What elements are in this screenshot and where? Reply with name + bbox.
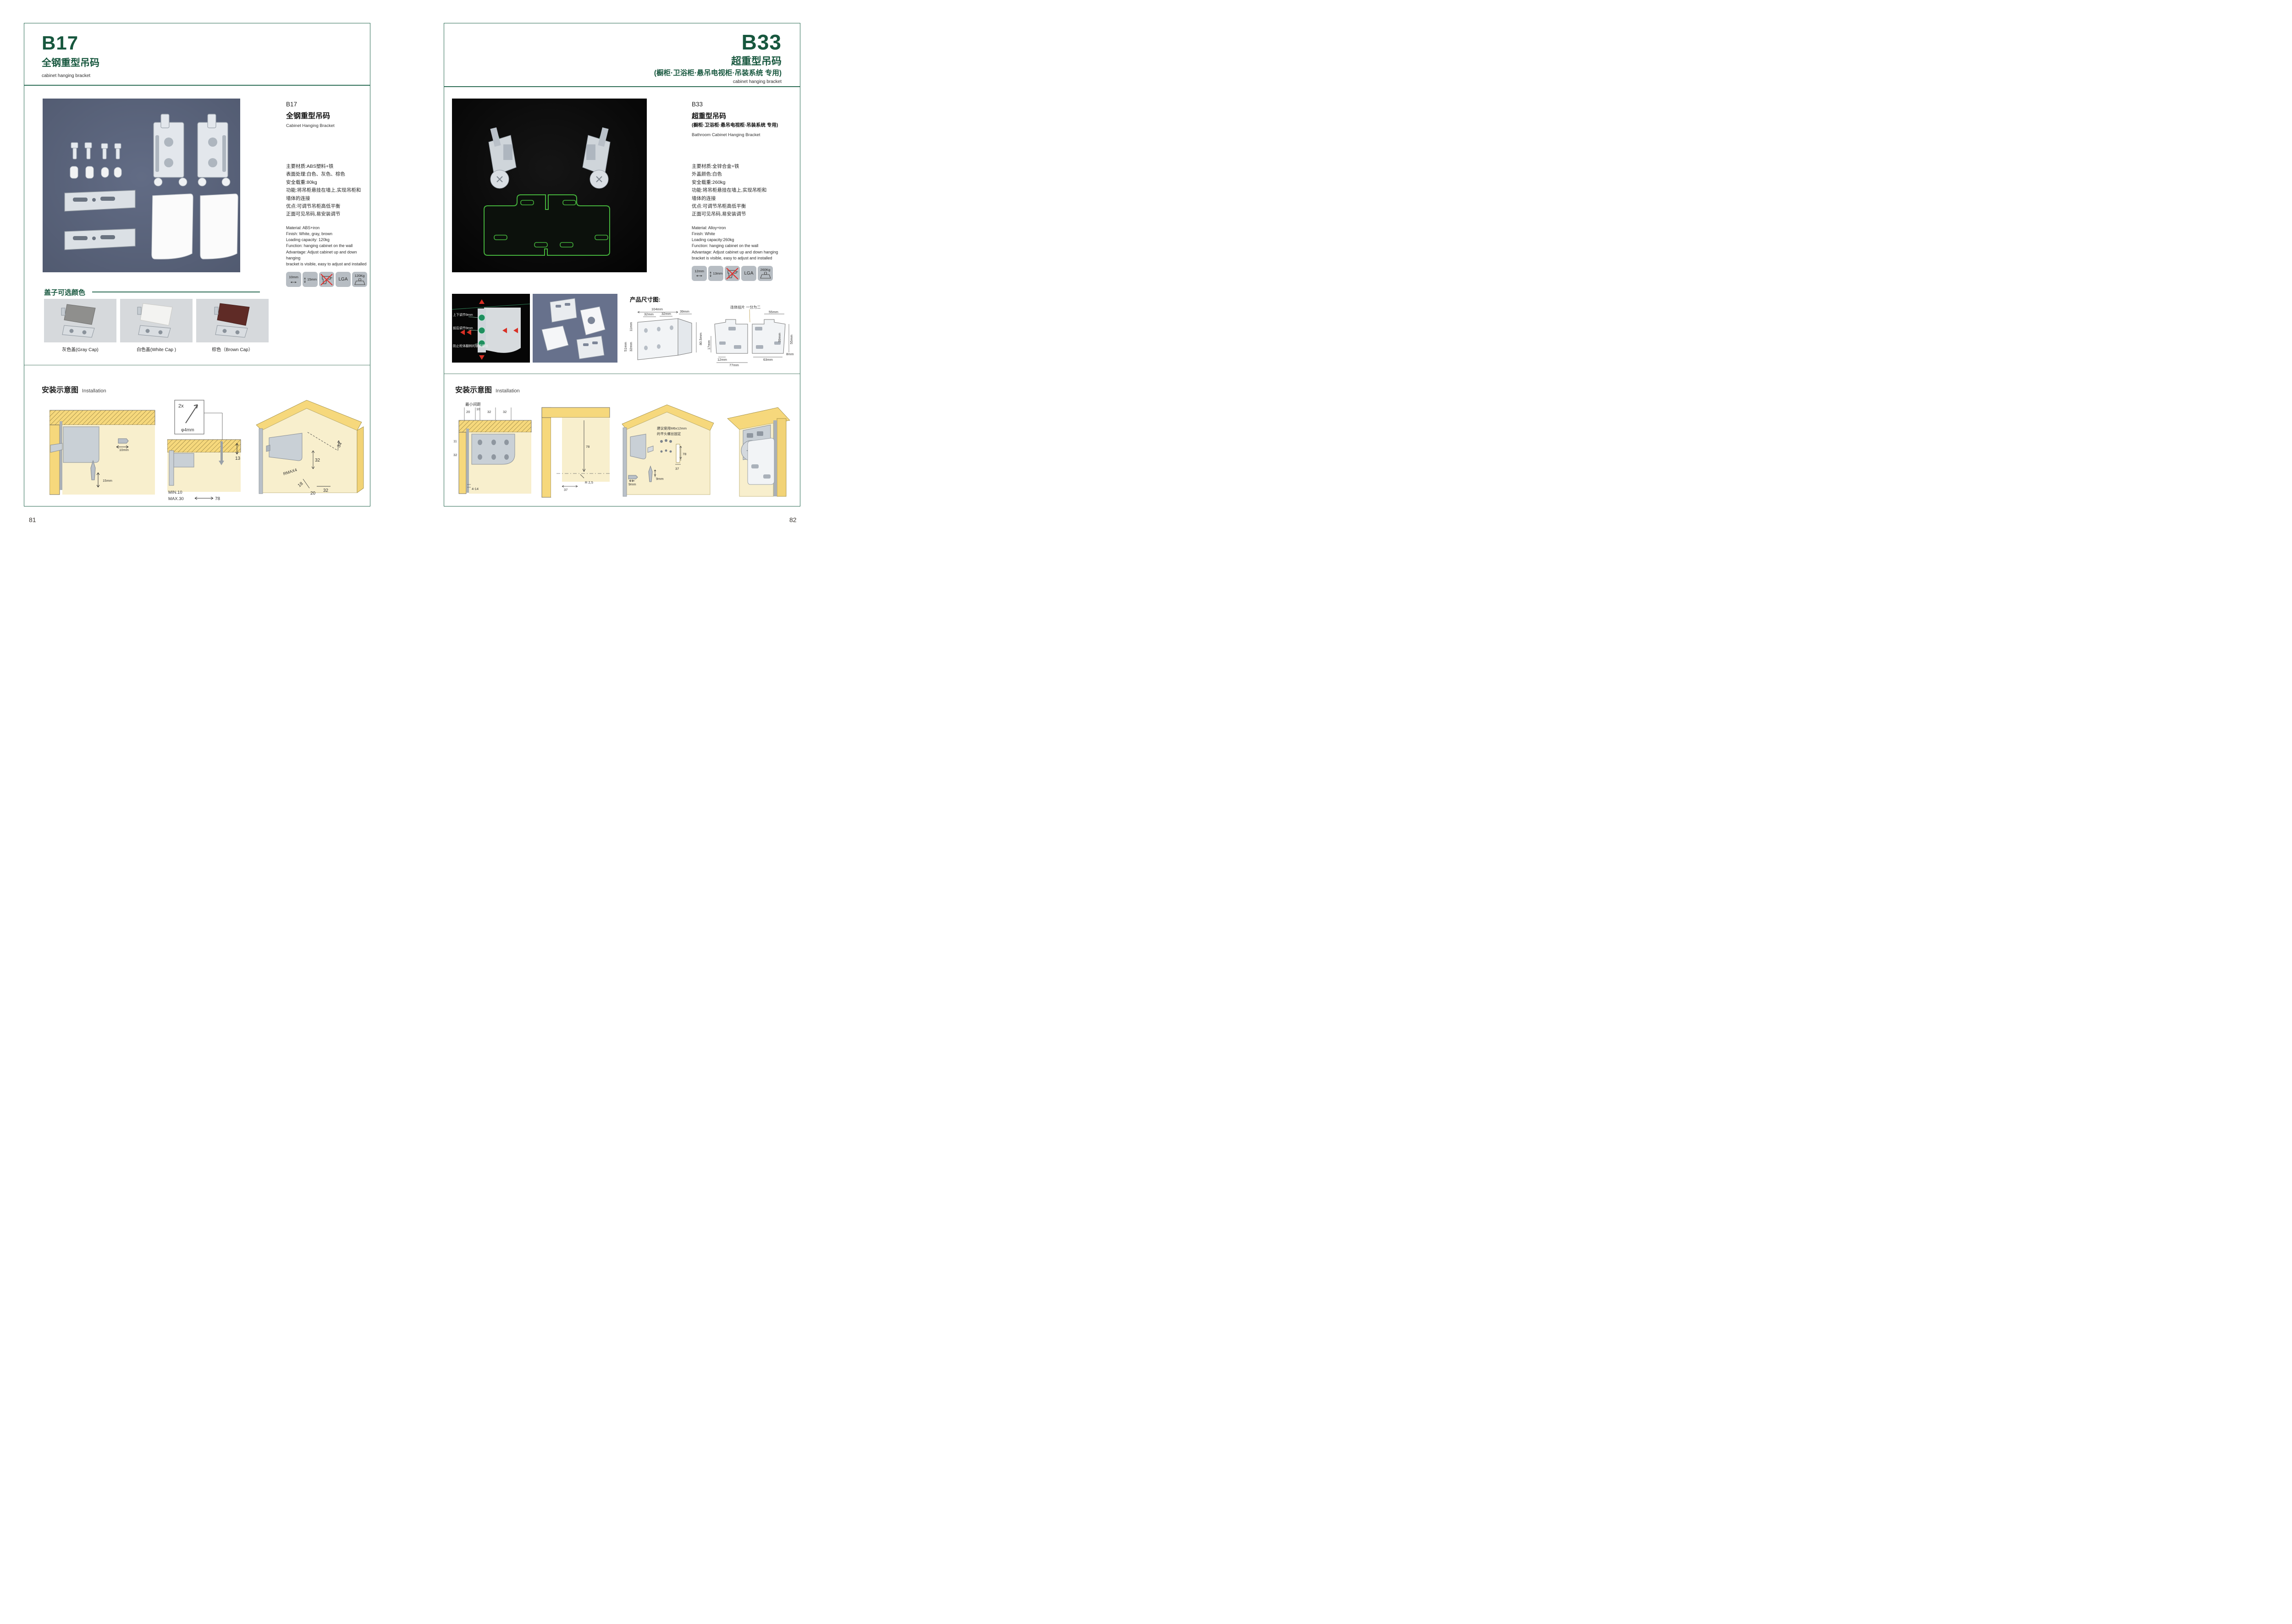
page-title-cn: 全钢重型吊码 xyxy=(42,58,99,68)
installation-title-en: Installation xyxy=(82,388,106,394)
dim-78: 78 xyxy=(586,445,590,449)
spec-name-cn2: (橱柜·卫浴柜·悬吊电视柜·吊装系统 专用) xyxy=(692,121,791,129)
spec-name-en: Bathroom Cabinet Hanging Bracket xyxy=(692,131,791,139)
depth-icon-label: 15mm xyxy=(307,278,317,281)
install-diagram-screw-positions: 建议使用M6x12mm 的平头螺丝固定 78 37 9mm 9mm xyxy=(617,400,717,505)
dimension-drawing-bracket: 104mm 32mm 32mm 39mm 11mm 32mm 51mm 80.5… xyxy=(623,304,705,366)
dim-11: 11 xyxy=(453,439,457,443)
dim-32mm-a: 32mm xyxy=(644,312,654,316)
horizontal-arrow-icon: ↔ xyxy=(694,273,704,277)
plates-label: 连体挂片 一分为二 xyxy=(730,305,760,309)
page-title-code: B33 xyxy=(742,32,782,53)
annot-updown: 上下调节9mm xyxy=(453,313,473,317)
spec-line: 墙体的连接 xyxy=(692,195,791,203)
spec-line: 外盖颜色:白色 xyxy=(692,171,791,178)
spec-line: 功能:将吊柜悬挂在墙上,实现吊柜和 xyxy=(286,187,369,194)
spec-line: Advantage: Adjust cabinet up and down ha… xyxy=(286,249,369,261)
page-subtitle-en: cabinet hanging bracket xyxy=(733,79,782,84)
spec-line: 主要材质:ABS塑料+铁 xyxy=(286,163,369,171)
cap-swatch-white xyxy=(120,299,193,342)
spec-line: 优点:可调节吊柜高低平衡 xyxy=(286,203,369,210)
spec-lines-en: Material: Alloy+iron Finish: White Loadi… xyxy=(692,225,791,261)
dim-15mm: 15mm xyxy=(103,479,112,483)
feature-icons-row: 10mm ↔ ↕ 15mm L xyxy=(286,272,369,287)
installation-title-cn: 安装示意图 xyxy=(455,386,492,394)
cap-swatch-gray xyxy=(44,299,116,342)
cap-caption-gray: 灰色盖(Gray Cap) xyxy=(44,346,116,352)
depth-icon: ↕ 15mm xyxy=(303,272,318,287)
install-diagram-cover-mounted xyxy=(723,400,795,505)
label-min-gap: 最小间距 xyxy=(465,402,481,407)
dim-10: 10 xyxy=(476,407,480,411)
dim-37: 37 xyxy=(564,488,567,492)
feature-icons-row: 12mm ↔ ↕ 13mm L xyxy=(692,266,791,281)
spec-lines-cn: 主要材质:全锌合金+铁 外盖颜色:白色 安全载重:260kg 功能:将吊柜悬挂在… xyxy=(692,163,791,219)
spec-line: 正面可见吊码,易安装调节 xyxy=(692,210,791,218)
no-drill-icon xyxy=(725,266,740,281)
dim-11mm: 11mm xyxy=(629,322,633,331)
vertical-arrow-icon: ↕ xyxy=(709,269,712,278)
product-photo-b17 xyxy=(43,99,240,272)
spec-line: Finish: White xyxy=(692,231,791,237)
dimension-drawing-plates: 连体挂片 一分为二 55mm 39mm 55mm 8mm 17mm 12mm xyxy=(707,304,794,366)
installation-title: 安装示意图Installation xyxy=(42,384,106,395)
lga-cert-icon: LGA xyxy=(336,272,351,287)
dim-32a: 32 xyxy=(487,410,491,414)
dim-55mm-top: 55mm xyxy=(769,310,778,314)
dim-32c: 32 xyxy=(453,453,457,457)
depth-icon: ↕ 13mm xyxy=(708,266,723,281)
product-photo-b33 xyxy=(452,99,647,272)
weight-glyph xyxy=(760,272,771,279)
spec-line: Function: hanging cabinet on the wall xyxy=(286,243,369,249)
load-capacity-icon: 120Kg xyxy=(352,272,367,287)
install-diagram-isometric: 34 32 RMAX4 18 20 32 xyxy=(248,396,366,504)
cap-caption-brown: 棕色（Brown Cap） xyxy=(196,346,269,352)
depth-icon-label: 13mm xyxy=(713,272,722,275)
dim-20: 20 xyxy=(466,410,470,414)
dim-4-14: 4-14 xyxy=(472,487,479,491)
dim-37: 37 xyxy=(675,467,679,471)
installation-title-cn: 安装示意图 xyxy=(42,386,78,394)
header-divider xyxy=(444,86,800,87)
install-diagram-hole-pattern: 最小间距 20 10 32 32 11 32 4-14 xyxy=(453,400,532,505)
no-drill-icon xyxy=(319,272,334,287)
installation-title-en: Installation xyxy=(496,388,520,394)
horizontal-arrow-icon: ↔ xyxy=(288,279,298,284)
dim-20: 20 xyxy=(310,491,316,496)
spec-line: Loading capacity:260kg xyxy=(692,237,791,243)
dim-77mm: 77mm xyxy=(729,363,739,366)
annot-lockscrew: 防止柜体翻转的锁紧螺丝 xyxy=(453,344,488,348)
load-label: 260Kg xyxy=(760,268,771,272)
page-title-paren: (橱柜·卫浴柜·悬吊电视柜·吊装系统 专用) xyxy=(654,70,782,77)
install-diagram-screw-spacing: 2x φ4mm 13 MIN.10 MAX.30 78 xyxy=(167,399,243,503)
installation-title: 安装示意图Installation xyxy=(455,384,520,395)
dim-12mm: 12mm xyxy=(717,358,727,362)
spec-line: Finish: White, gray, brown xyxy=(286,231,369,237)
cap-caption-white: 白色盖(White Cap ) xyxy=(120,346,193,352)
spec-line: 安全载重:80kg xyxy=(286,179,369,187)
adjustment-photo: 上下调节9mm 前后调节9mm 防止柜体翻转的锁紧螺丝 xyxy=(452,294,530,363)
section-divider xyxy=(24,365,370,365)
load-capacity-icon: 260Kg xyxy=(758,266,773,281)
install-diagram-cross-section: 10mm 15mm xyxy=(50,403,160,501)
spec-line: Material: ABS+iron xyxy=(286,225,369,231)
spec-line: Loading capacity: 120kg xyxy=(286,237,369,243)
spec-name-cn: 全钢重型吊码 xyxy=(286,112,369,120)
dim-32a: 32 xyxy=(315,458,320,463)
spec-line: 功能:将吊柜悬挂在墙上,实现吊柜和 xyxy=(692,187,791,194)
page-number-left: 81 xyxy=(29,516,36,523)
dim-9mm-v: 9mm xyxy=(656,477,664,481)
screw-diameter: φ4mm xyxy=(181,428,194,433)
page-title-code: B17 xyxy=(42,33,78,53)
page-right-b33: B33 超重型吊码 (橱柜·卫浴柜·悬吊电视柜·吊装系统 专用) cabinet… xyxy=(444,23,800,506)
page-number-right: 82 xyxy=(789,516,797,523)
caps-title-rule xyxy=(92,292,260,292)
spec-line: 正面可见吊码,易安装调节 xyxy=(286,210,369,218)
dim-104mm: 104mm xyxy=(651,307,663,311)
caps-section-title: 盖子可选颜色 xyxy=(44,287,85,297)
dim-51mm: 51mm xyxy=(623,342,628,352)
spec-lines-en: Material: ABS+iron Finish: White, gray, … xyxy=(286,225,369,267)
spec-code: B17 xyxy=(286,100,369,108)
spec-column-b17: B17 全钢重型吊码 Cabinet Hanging Bracket 主要材质:… xyxy=(286,100,369,287)
spec-line: bracket is visible, easy to adjust and i… xyxy=(286,261,369,267)
dim-32b: 32 xyxy=(323,488,329,493)
dim-max30: MAX.30 xyxy=(168,496,184,501)
spec-column-b33: B33 超重型吊码 (橱柜·卫浴柜·悬吊电视柜·吊装系统 专用) Bathroo… xyxy=(692,100,791,281)
dimensions-title: 产品尺寸图: xyxy=(630,295,661,303)
spec-line: Material: Alloy+iron xyxy=(692,225,791,231)
dim-39mm: 39mm xyxy=(777,333,782,342)
spec-line: bracket is visible, easy to adjust and i… xyxy=(692,255,791,261)
weight-glyph xyxy=(354,278,365,285)
annot-frontback: 前后调节9mm xyxy=(453,326,473,330)
cap-swatch-brown xyxy=(196,299,269,342)
screw-qty: 2x xyxy=(178,403,184,409)
dim-39mm: 39mm xyxy=(680,309,689,314)
vertical-arrow-icon: ↕ xyxy=(303,275,307,284)
note-screw-2: 的平头螺丝固定 xyxy=(657,431,681,436)
dim-13: 13 xyxy=(235,456,241,461)
page-subtitle-en: cabinet hanging bracket xyxy=(42,73,90,78)
spec-name-cn: 超重型吊码 xyxy=(692,112,791,120)
dim-17mm: 17mm xyxy=(707,340,711,350)
spec-line: 优点:可调节吊柜高低平衡 xyxy=(692,203,791,210)
dim-78: 78 xyxy=(215,496,220,501)
section-divider xyxy=(444,374,800,374)
dim-min10: MIN.10 xyxy=(168,490,182,495)
spec-code: B33 xyxy=(692,100,791,108)
lga-label: LGA xyxy=(744,270,753,277)
dim-10mm: 10mm xyxy=(119,448,129,452)
spec-line: Advantage: Adjust cabinet up and down ha… xyxy=(692,249,791,255)
lga-cert-icon: LGA xyxy=(741,266,756,281)
spec-line: 表面处理:白色、灰色、棕色 xyxy=(286,171,369,178)
width-icon: 12mm ↔ xyxy=(692,266,707,281)
spec-line: 墙体的连接 xyxy=(286,195,369,203)
spec-line: 主要材质:全锌合金+铁 xyxy=(692,163,791,171)
dim-55mm-right: 55mm xyxy=(789,335,793,344)
spec-line: 安全载重:260kg xyxy=(692,179,791,187)
dim-78: 78 xyxy=(683,452,686,456)
dim-32b: 32 xyxy=(503,410,507,414)
spec-lines-cn: 主要材质:ABS塑料+铁 表面处理:白色、灰色、棕色 安全载重:80kg 功能:… xyxy=(286,163,369,219)
dim-63mm: 63mm xyxy=(763,358,773,362)
lga-label: LGA xyxy=(338,275,347,283)
components-photo xyxy=(533,294,617,363)
catalog-spread: B17 全钢重型吊码 cabinet hanging bracket xyxy=(0,0,830,541)
dim-32mm-c: 32mm xyxy=(629,342,633,352)
note-screw-1: 建议使用M6x12mm xyxy=(657,426,687,430)
width-icon: 10mm ↔ xyxy=(286,272,301,287)
dim-9mm-h: 9mm xyxy=(628,482,636,486)
dim-80p5mm: 80.5mm xyxy=(699,333,703,345)
dim-32mm-b: 32mm xyxy=(661,312,671,316)
spec-name-en: Cabinet Hanging Bracket xyxy=(286,122,369,130)
page-title-cn: 超重型吊码 xyxy=(731,56,782,66)
install-diagram-back-panel: 78 R 2,5 37 xyxy=(538,400,612,505)
dim-r25: R 2,5 xyxy=(585,480,593,484)
spec-line: Function: hanging cabinet on the wall xyxy=(692,243,791,249)
load-label: 120Kg xyxy=(355,274,365,278)
page-left-b17: B17 全钢重型吊码 cabinet hanging bracket xyxy=(24,23,370,506)
dim-8mm: 8mm xyxy=(786,352,794,356)
header-divider xyxy=(24,85,370,86)
